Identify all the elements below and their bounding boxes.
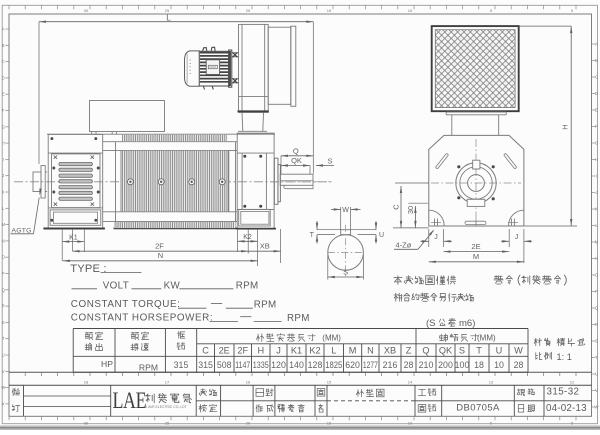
svg-text:J: J (595, 190, 597, 195)
svg-text:m6): m6) (459, 318, 475, 329)
svg-text:Q: Q (293, 146, 299, 155)
svg-text:D: D (2, 75, 5, 80)
svg-text:RPM: RPM (236, 280, 259, 291)
svg-text:2F: 2F (155, 241, 164, 250)
svg-text:H: H (561, 124, 570, 129)
svg-text:W: W (1, 385, 5, 390)
svg-text:S: S (2, 320, 5, 325)
svg-text:30: 30 (84, 421, 89, 426)
svg-text:620: 620 (345, 360, 360, 370)
svg-text:V: V (2, 369, 5, 374)
svg-text:N: N (2, 238, 5, 243)
svg-text:B: B (595, 58, 598, 63)
svg-text:1825: 1825 (325, 360, 342, 370)
svg-text:12: 12 (570, 380, 575, 385)
svg-text:R: R (2, 304, 5, 309)
svg-text:4-Zø: 4-Zø (396, 240, 412, 249)
svg-text:K: K (595, 207, 598, 212)
svg-text:T: T (595, 355, 598, 360)
svg-text:A: A (2, 27, 5, 32)
svg-text:M: M (595, 240, 599, 245)
svg-text:04-02-13: 04-02-13 (546, 403, 587, 414)
svg-text:2E: 2E (219, 346, 230, 356)
svg-text:315: 315 (198, 360, 213, 370)
svg-text:F: F (595, 124, 598, 129)
svg-text:W: W (514, 346, 523, 356)
svg-text:K1: K1 (291, 346, 302, 356)
svg-text:LAE: LAE (113, 389, 147, 414)
svg-text:N: N (158, 251, 163, 260)
svg-text:C: C (392, 204, 401, 210)
svg-text:U: U (595, 372, 598, 377)
svg-text:120: 120 (271, 360, 286, 370)
svg-text:C: C (595, 75, 598, 80)
svg-text:E: E (2, 92, 5, 97)
svg-text:(S: (S (426, 318, 436, 329)
svg-text:T: T (476, 346, 482, 356)
svg-text:J: J (2, 173, 4, 178)
svg-text:CONSTANT TORQUE:: CONSTANT TORQUE: (71, 299, 181, 310)
svg-text:Q: Q (422, 346, 429, 356)
svg-text:140: 140 (289, 360, 304, 370)
svg-text:P: P (595, 289, 598, 294)
svg-text:R: R (595, 322, 598, 327)
svg-text:M: M (1, 222, 5, 227)
svg-text:K2: K2 (243, 234, 252, 241)
svg-text:1: 1: 1: 1 (557, 352, 572, 362)
svg-text:30: 30 (406, 206, 415, 214)
svg-text:100: 100 (455, 360, 470, 370)
svg-text:L: L (166, 13, 171, 22)
svg-text:N: N (595, 256, 598, 261)
svg-text:K1: K1 (69, 234, 78, 241)
svg-text:U: U (496, 346, 503, 356)
svg-text:VOLT: VOLT (103, 280, 129, 291)
svg-text:AGTG: AGTG (12, 227, 32, 234)
svg-text:S: S (459, 346, 465, 356)
svg-text:S: S (327, 156, 332, 165)
svg-text:10: 10 (408, 421, 413, 426)
svg-text:B: B (2, 43, 5, 48)
svg-text:XB: XB (260, 242, 270, 251)
svg-text:K: K (2, 190, 5, 195)
svg-text:508: 508 (217, 360, 232, 370)
svg-text:H: H (257, 346, 264, 356)
svg-text:G: G (595, 141, 598, 146)
svg-text:L: L (331, 346, 336, 356)
svg-text:H: H (2, 141, 5, 146)
svg-text:16: 16 (246, 380, 251, 385)
svg-text:W: W (595, 405, 599, 410)
svg-text:CONSTANT HORSEPOWER:: CONSTANT HORSEPOWER: (71, 313, 213, 324)
svg-text:128: 128 (308, 360, 323, 370)
svg-text:P: P (2, 271, 5, 276)
svg-text:QK: QK (439, 346, 453, 356)
svg-text:A: A (595, 42, 598, 47)
svg-text:J: J (276, 346, 281, 356)
svg-text:N: N (367, 346, 374, 356)
svg-text:TYPE :: TYPE : (70, 263, 106, 275)
svg-text:S: S (595, 339, 598, 344)
svg-text:200: 200 (438, 360, 453, 370)
svg-text:G: G (2, 124, 5, 129)
svg-text:10: 10 (408, 8, 413, 13)
svg-text:216: 216 (383, 360, 398, 370)
svg-text:H: H (595, 157, 598, 162)
svg-text:T: T (310, 232, 315, 239)
svg-text:(MM): (MM) (477, 333, 496, 342)
svg-text:15: 15 (327, 421, 332, 426)
svg-text:30: 30 (84, 8, 89, 13)
svg-text:18: 18 (84, 380, 89, 385)
svg-text:T: T (2, 336, 5, 341)
svg-text:315: 315 (174, 360, 189, 370)
svg-text:HP: HP (101, 359, 113, 369)
svg-text:25: 25 (165, 8, 170, 13)
svg-text:(MM): (MM) (322, 333, 341, 342)
svg-text:I: I (3, 157, 4, 162)
svg-text:W: W (342, 207, 349, 214)
svg-text:LI AVE ELECTRIC CO.,LDT: LI AVE ELECTRIC CO.,LDT (145, 405, 187, 409)
svg-text:F: F (2, 108, 5, 113)
svg-text:QK: QK (291, 156, 302, 165)
svg-text:XB: XB (384, 346, 396, 356)
svg-text:X: X (2, 401, 5, 406)
svg-text:15: 15 (327, 8, 332, 13)
svg-text:20: 20 (246, 421, 251, 426)
svg-text:V: V (595, 388, 598, 393)
svg-text:2F: 2F (237, 346, 248, 356)
svg-text:28: 28 (514, 360, 524, 370)
svg-text:J: J (434, 234, 438, 241)
svg-text:RPM: RPM (139, 362, 158, 372)
svg-text:C: C (2, 59, 5, 64)
svg-text:14: 14 (408, 380, 413, 385)
svg-text:E: E (595, 108, 598, 113)
svg-text:I: I (596, 174, 597, 179)
svg-text:1335: 1335 (253, 360, 269, 370)
svg-text:DB0705A: DB0705A (456, 403, 500, 414)
svg-text:K2: K2 (309, 346, 320, 356)
svg-text:J: J (515, 234, 519, 241)
svg-text:U: U (379, 232, 384, 239)
svg-text:1277: 1277 (363, 360, 378, 370)
svg-text:C: C (202, 346, 209, 356)
svg-text:25: 25 (165, 421, 170, 426)
svg-text:17: 17 (165, 380, 170, 385)
svg-text:315-32: 315-32 (547, 387, 580, 398)
svg-text:210: 210 (419, 360, 434, 370)
svg-text:18: 18 (474, 360, 484, 370)
svg-text:10: 10 (494, 360, 504, 370)
svg-text:U: U (2, 353, 5, 358)
svg-text:KW: KW (164, 280, 181, 291)
svg-text:M: M (473, 252, 479, 261)
svg-text:28: 28 (404, 360, 414, 370)
svg-text:S: S (343, 268, 348, 277)
svg-text:RPM: RPM (287, 313, 310, 324)
svg-text:M: M (349, 346, 357, 356)
svg-text:20: 20 (246, 8, 251, 13)
svg-text:1147: 1147 (235, 360, 250, 370)
svg-text:Z: Z (406, 346, 412, 356)
svg-text:RPM: RPM (254, 300, 277, 311)
svg-text:2E: 2E (471, 242, 480, 251)
svg-text:D: D (595, 91, 598, 96)
svg-text:15: 15 (327, 380, 332, 385)
svg-text:13: 13 (489, 380, 494, 385)
